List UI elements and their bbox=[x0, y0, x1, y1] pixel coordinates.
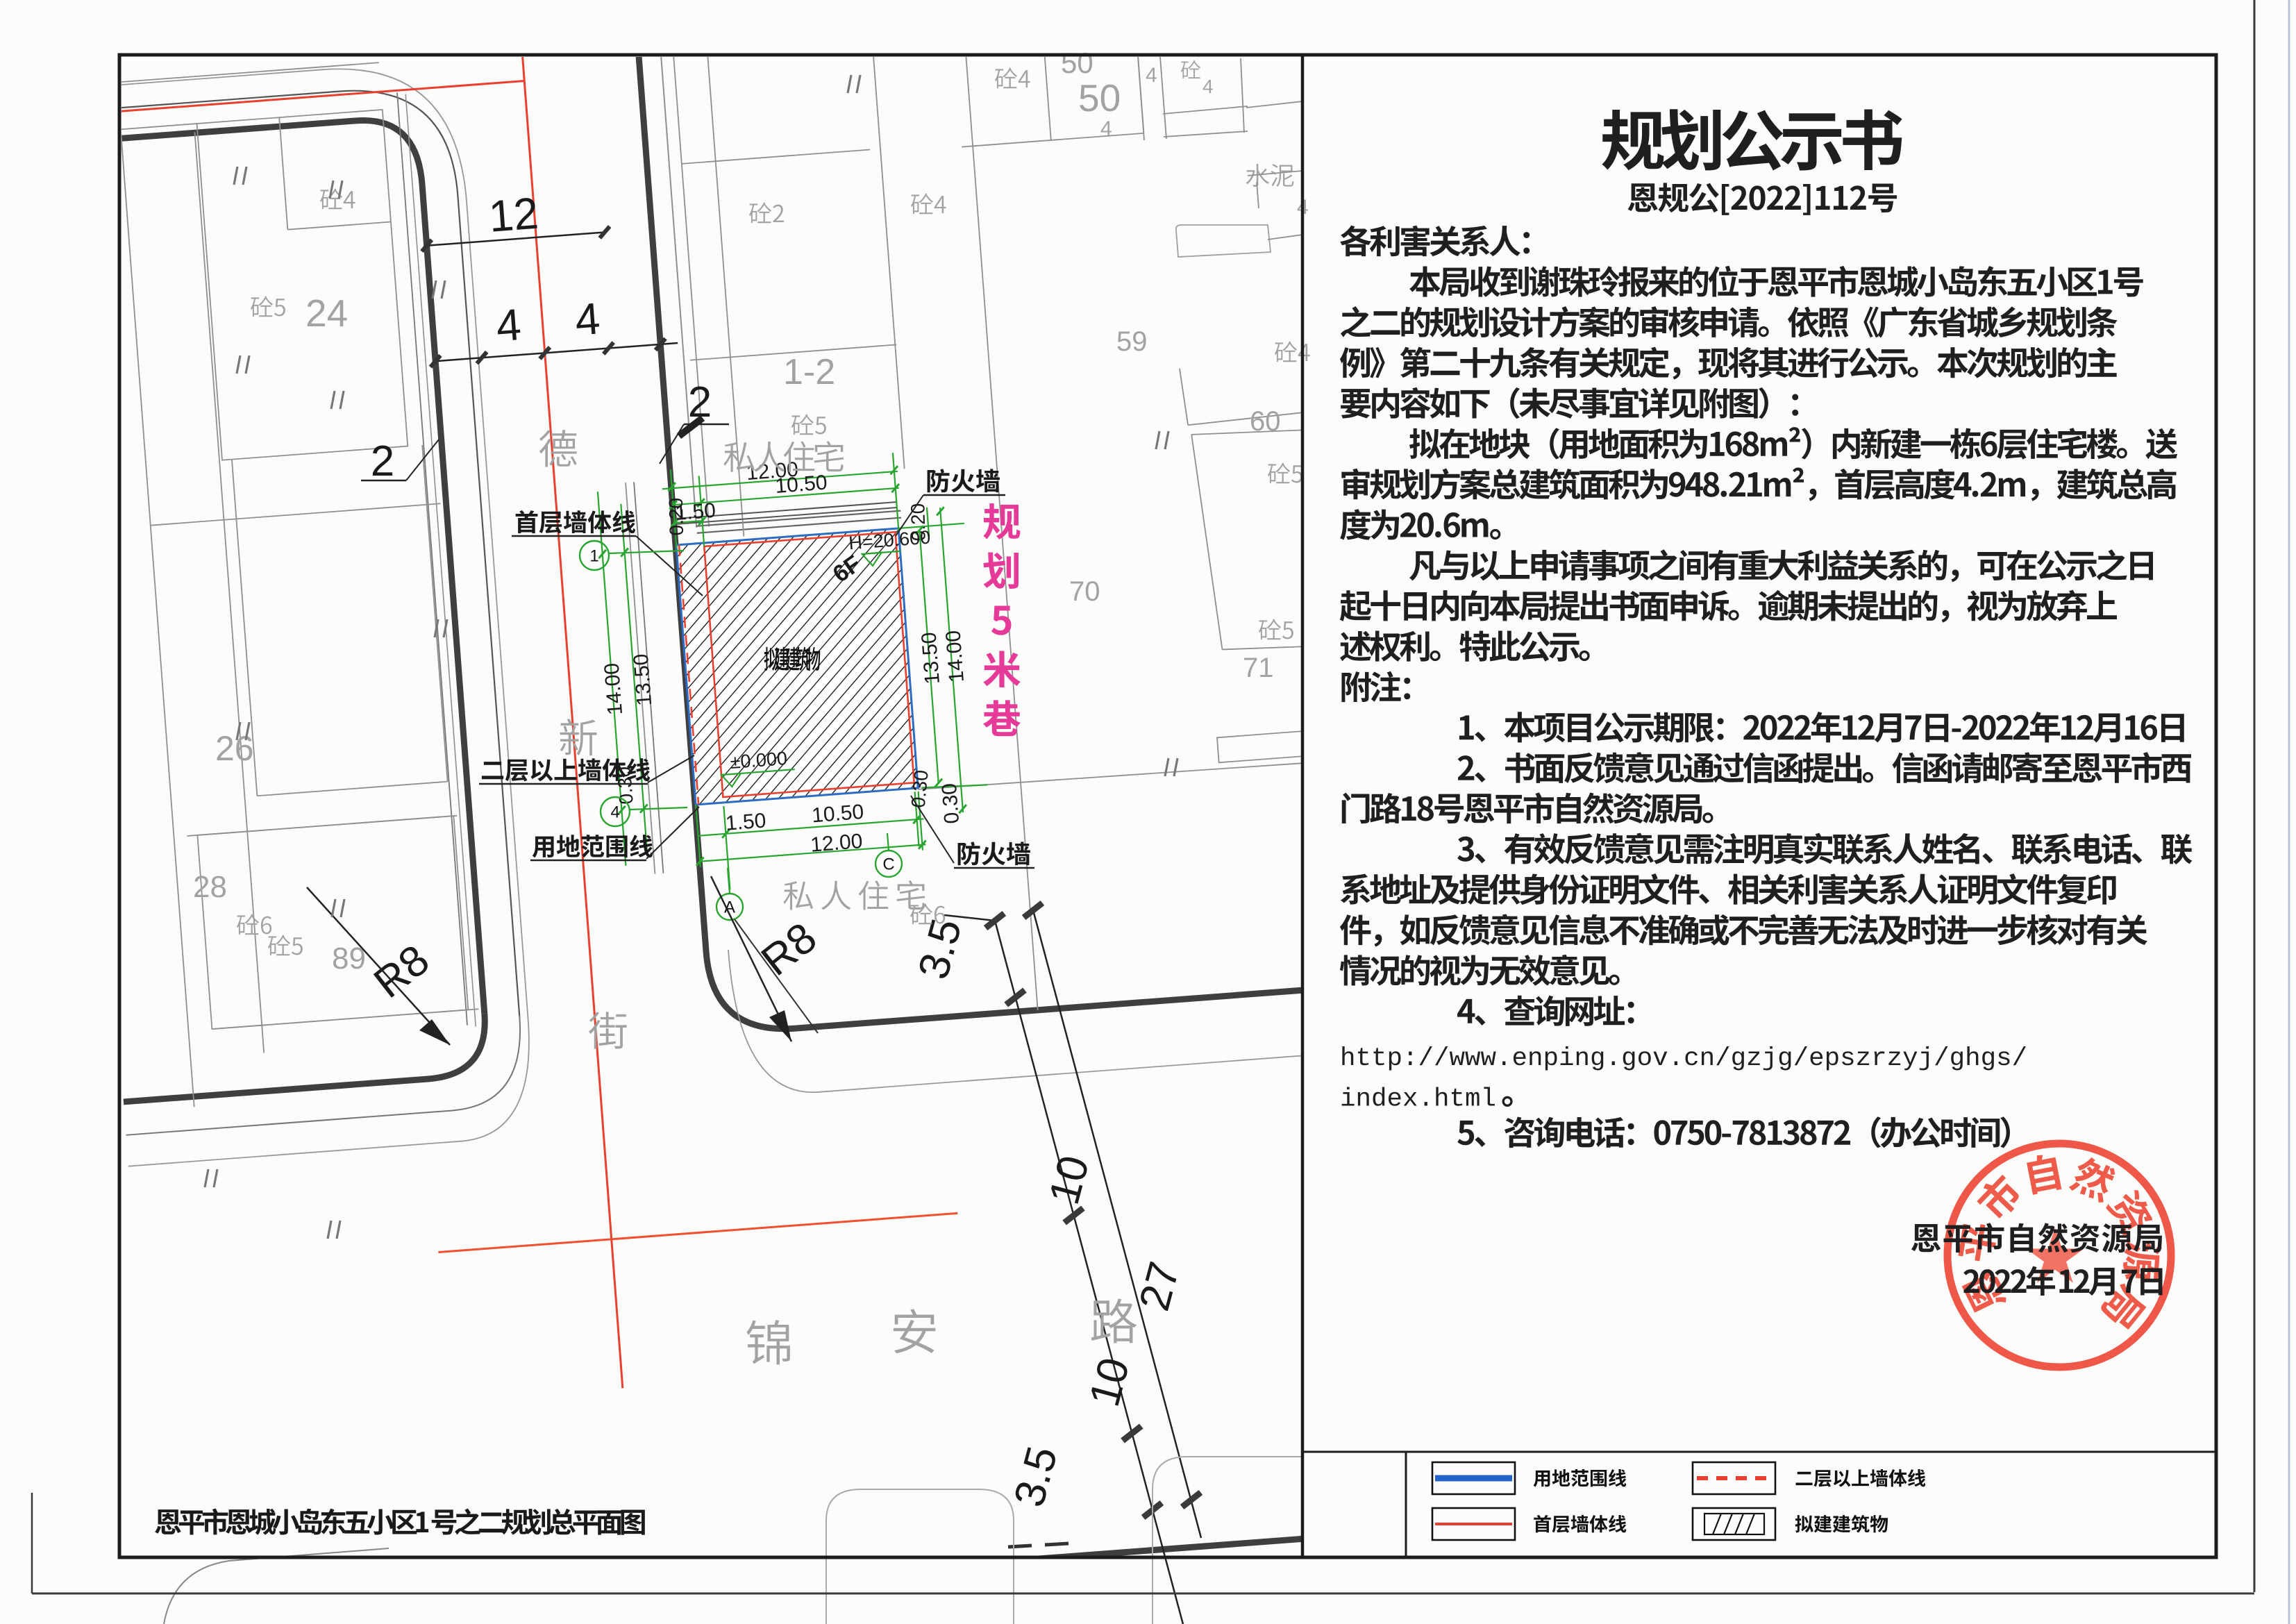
svg-text:60: 60 bbox=[1250, 406, 1281, 437]
svg-text:4: 4 bbox=[610, 803, 619, 822]
svg-text:50: 50 bbox=[1078, 76, 1121, 119]
svg-text:4: 4 bbox=[1100, 117, 1112, 140]
svg-text:1: 1 bbox=[589, 547, 598, 566]
svg-text:13.50: 13.50 bbox=[917, 631, 944, 685]
svg-text:±0.000: ±0.000 bbox=[730, 748, 788, 773]
svg-text:50: 50 bbox=[1061, 47, 1093, 79]
svg-text:14.00: 14.00 bbox=[601, 662, 628, 716]
svg-text:59: 59 bbox=[1116, 326, 1148, 357]
svg-text:1.50: 1.50 bbox=[725, 809, 767, 835]
svg-text:12.00: 12.00 bbox=[810, 830, 863, 857]
svg-text:4: 4 bbox=[573, 293, 602, 344]
svg-text:http://www.enping.gov.cn/gzjg/: http://www.enping.gov.cn/gzjg/epszrzyj/g… bbox=[1340, 1044, 2027, 1073]
svg-text:1-2: 1-2 bbox=[783, 352, 835, 392]
svg-text:71: 71 bbox=[1243, 653, 1274, 683]
svg-text:26: 26 bbox=[215, 729, 254, 768]
svg-text:C: C bbox=[882, 855, 894, 874]
svg-text:14.00: 14.00 bbox=[941, 630, 969, 683]
svg-text:10.50: 10.50 bbox=[774, 471, 828, 498]
svg-text:0.30: 0.30 bbox=[938, 782, 964, 825]
svg-text:13.50: 13.50 bbox=[630, 653, 657, 706]
svg-text:70: 70 bbox=[1069, 576, 1100, 607]
svg-text:0.20: 0.20 bbox=[665, 498, 687, 536]
svg-text:0.30: 0.30 bbox=[907, 769, 932, 809]
svg-text:89: 89 bbox=[332, 941, 366, 976]
svg-text:4: 4 bbox=[494, 299, 523, 351]
svg-text:12: 12 bbox=[487, 188, 539, 242]
svg-text:28: 28 bbox=[193, 870, 227, 904]
svg-text:index.html: index.html bbox=[1340, 1085, 1496, 1114]
svg-text:2: 2 bbox=[371, 437, 394, 485]
svg-text:10.50: 10.50 bbox=[811, 801, 864, 828]
svg-text:24: 24 bbox=[305, 292, 348, 335]
svg-text:4: 4 bbox=[1146, 64, 1157, 87]
svg-text:4: 4 bbox=[1203, 76, 1214, 97]
